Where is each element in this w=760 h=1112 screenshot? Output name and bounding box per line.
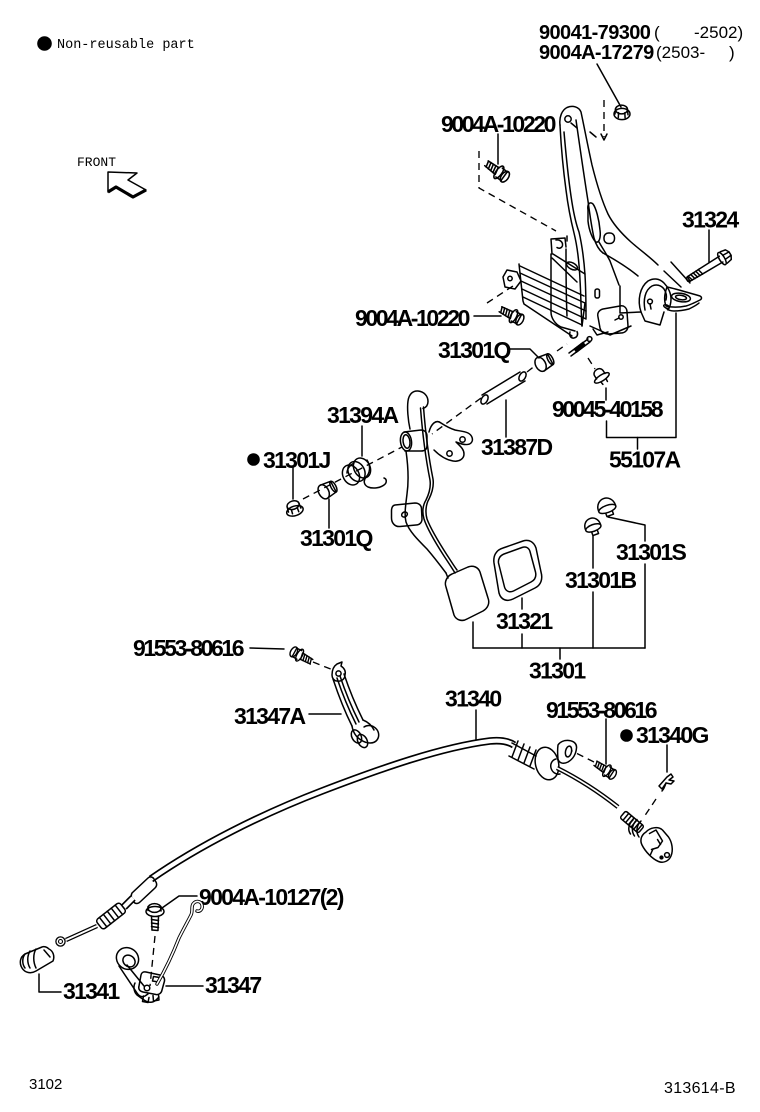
svg-text:Non-reusable part: Non-reusable part	[57, 38, 195, 53]
svg-text:31340G: 31340G	[636, 722, 708, 748]
svg-text:3102: 3102	[29, 1076, 62, 1093]
svg-text:(2503-: (2503-	[656, 43, 705, 62]
svg-text:(: (	[654, 23, 660, 42]
svg-text:FRONT: FRONT	[77, 155, 116, 170]
svg-text:31347: 31347	[205, 972, 261, 998]
svg-text:-2502): -2502)	[694, 23, 743, 42]
svg-text:9004A-17279: 9004A-17279	[539, 42, 654, 64]
svg-text:31341: 31341	[63, 978, 120, 1004]
svg-text:31340: 31340	[445, 686, 501, 712]
svg-text:9004A-10127(2): 9004A-10127(2)	[199, 884, 344, 910]
svg-text:9004A-10220: 9004A-10220	[441, 111, 556, 137]
svg-text:55107A: 55107A	[609, 447, 680, 473]
svg-text:31301J: 31301J	[263, 447, 330, 473]
svg-text:9004A-10220: 9004A-10220	[355, 305, 470, 331]
svg-text:31301S: 31301S	[616, 539, 686, 565]
svg-text:31324: 31324	[682, 207, 739, 233]
svg-text:91553-80616: 91553-80616	[546, 697, 657, 723]
svg-text:31321: 31321	[496, 608, 553, 634]
svg-text:31301: 31301	[529, 658, 586, 684]
svg-text:): )	[729, 43, 735, 62]
svg-text:31347A: 31347A	[234, 703, 305, 729]
svg-text:313614-B: 313614-B	[664, 1080, 736, 1097]
svg-text:31301Q: 31301Q	[438, 337, 510, 363]
svg-text:90041-79300: 90041-79300	[539, 22, 651, 44]
svg-text:31301Q: 31301Q	[300, 525, 372, 551]
svg-text:31394A: 31394A	[327, 402, 398, 428]
svg-text:31387D: 31387D	[481, 434, 552, 460]
svg-text:31301B: 31301B	[565, 567, 636, 593]
svg-text:90045-40158: 90045-40158	[552, 396, 664, 422]
svg-text:91553-80616: 91553-80616	[133, 635, 244, 661]
